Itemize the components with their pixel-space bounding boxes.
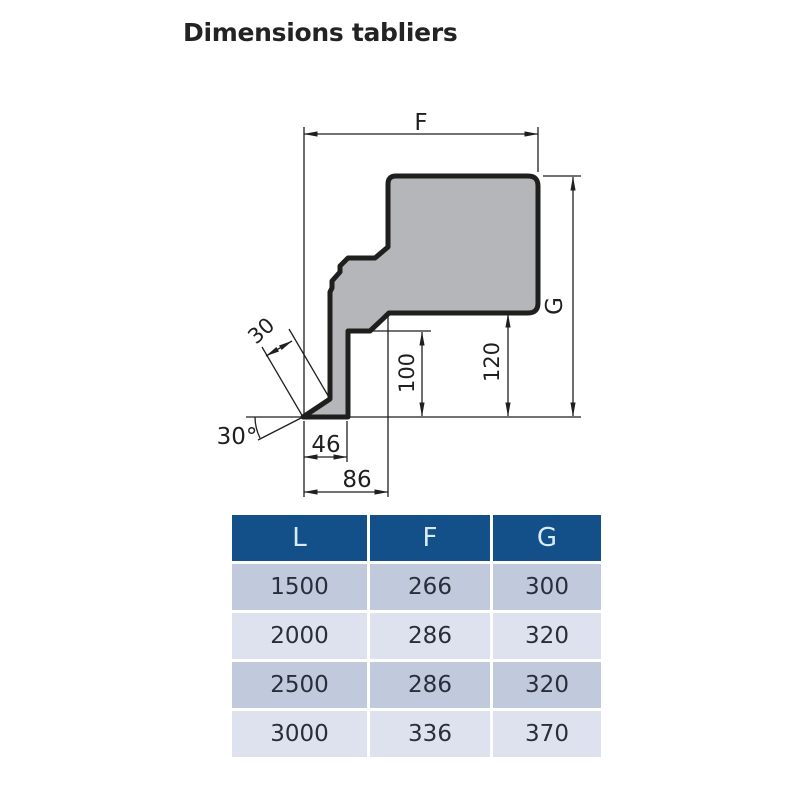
dim-100-label: 100: [395, 353, 419, 393]
cell-F: 286: [370, 662, 490, 708]
dim-120-label: 120: [480, 342, 504, 382]
dim-G-label: G: [542, 297, 568, 315]
dim-30: 30: [243, 313, 330, 417]
dim-30deg-label: 30°: [217, 424, 258, 450]
cell-G: 300: [493, 564, 601, 610]
table-row: 2000 286 320: [232, 613, 601, 659]
cell-L: 2000: [232, 613, 367, 659]
dim-100: 100: [350, 331, 431, 416]
cell-G: 320: [493, 613, 601, 659]
table-header-row: L F G: [232, 515, 601, 561]
dim-46-label: 46: [311, 432, 340, 458]
dimensions-table-wrap: L F G 1500 266 300 2000 286 320 2500: [229, 512, 604, 760]
profile-diagram: F G 120 100 46: [0, 0, 800, 520]
dim-46: 46: [304, 421, 347, 497]
cell-F: 336: [370, 711, 490, 757]
cell-F: 266: [370, 564, 490, 610]
dimensions-table: L F G 1500 266 300 2000 286 320 2500: [229, 512, 604, 760]
cell-L: 2500: [232, 662, 367, 708]
dim-30deg: 30°: [217, 417, 303, 450]
cell-G: 320: [493, 662, 601, 708]
cell-F: 286: [370, 613, 490, 659]
dim-F-label: F: [414, 110, 427, 136]
col-header-L: L: [232, 515, 367, 561]
dim-86-label: 86: [342, 467, 371, 493]
table-row: 1500 266 300: [232, 564, 601, 610]
col-header-F: F: [370, 515, 490, 561]
cell-L: 1500: [232, 564, 367, 610]
dim-120: 120: [480, 314, 508, 416]
cell-G: 370: [493, 711, 601, 757]
col-header-G: G: [493, 515, 601, 561]
cell-L: 3000: [232, 711, 367, 757]
table-row: 3000 336 370: [232, 711, 601, 757]
page: Dimensions tabliers F G 120: [0, 0, 800, 800]
table-row: 2500 286 320: [232, 662, 601, 708]
dim-30-label: 30: [243, 313, 279, 349]
